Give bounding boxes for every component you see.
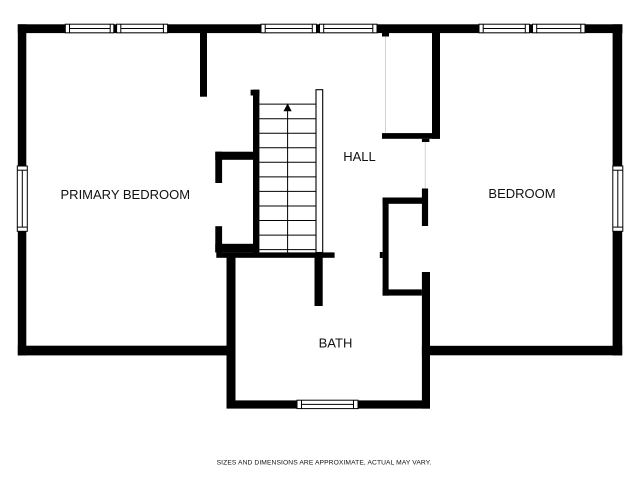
svg-text:PRIMARY BEDROOM: PRIMARY BEDROOM (61, 187, 191, 202)
svg-text:SIZES AND DIMENSIONS ARE APPRO: SIZES AND DIMENSIONS ARE APPROXIMATE, AC… (217, 460, 432, 467)
svg-text:BEDROOM: BEDROOM (488, 186, 555, 201)
svg-text:HALL: HALL (343, 149, 376, 164)
svg-text:BATH: BATH (319, 335, 353, 350)
